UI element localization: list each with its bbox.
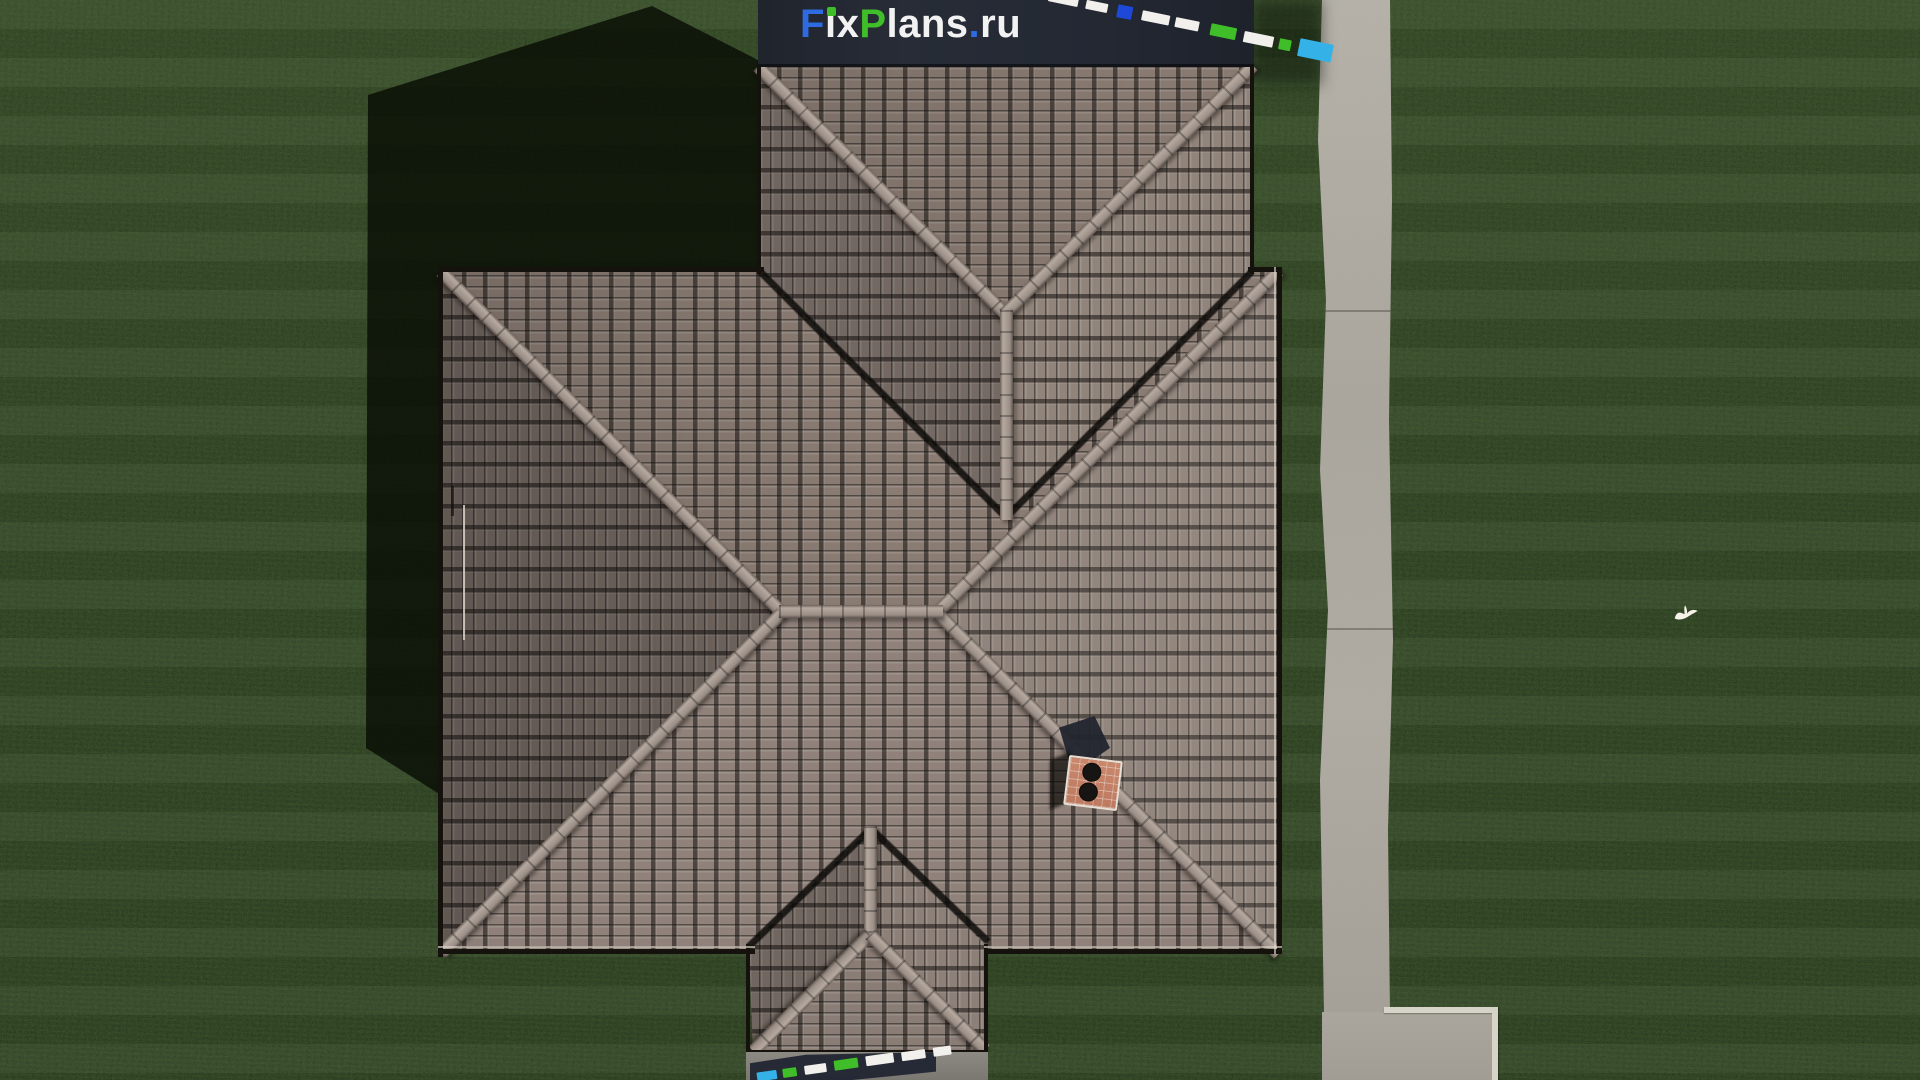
watermark-dash — [1278, 38, 1292, 51]
roof-antenna-shadow — [451, 486, 454, 516]
watermark-dash — [756, 1069, 777, 1080]
watermark-dash — [1243, 30, 1275, 47]
chimney — [1063, 755, 1123, 811]
logo-letter: x — [837, 2, 860, 46]
eave-east — [1277, 267, 1282, 954]
logo-letter: F — [800, 2, 825, 46]
roof — [0, 0, 1920, 1080]
eave-gable-west — [746, 944, 750, 1056]
eave-north-left — [438, 267, 764, 272]
eave-gable-east — [984, 944, 988, 1056]
fascia-highlight-east — [1274, 267, 1276, 954]
watermark-dash — [1048, 0, 1079, 7]
roof-antenna — [463, 505, 465, 640]
watermark-dash — [1174, 17, 1200, 32]
watermark-dash — [1116, 4, 1133, 20]
aerial-roof-render: FixPlans.ru — [0, 0, 1920, 1080]
wing-ridge — [1000, 310, 1013, 520]
eave-wing-west — [757, 62, 761, 274]
eave-west — [438, 267, 443, 957]
watermark-dash — [782, 1067, 797, 1078]
fascia-highlight-south2 — [984, 946, 1282, 948]
watermark-dash — [1141, 10, 1170, 25]
logo-letter: P — [859, 2, 886, 46]
watermark-dash — [1085, 0, 1108, 13]
chimney-flue-top — [1081, 762, 1102, 783]
fascia-highlight-south — [438, 946, 755, 948]
eave-south-right — [984, 949, 1282, 954]
logo-i-dot — [827, 7, 836, 16]
watermark-dash — [1209, 23, 1237, 40]
logo-dot: . — [969, 2, 981, 46]
logo-letters: lans — [887, 2, 969, 46]
eave-south-left — [438, 949, 755, 954]
main-ridge — [779, 605, 943, 618]
gable-ridge — [864, 826, 877, 940]
eave-wing-east — [1250, 62, 1254, 274]
watermark-dash — [933, 1045, 952, 1056]
logo-letters: ru — [980, 2, 1021, 46]
chimney-flue-bottom — [1078, 781, 1099, 802]
